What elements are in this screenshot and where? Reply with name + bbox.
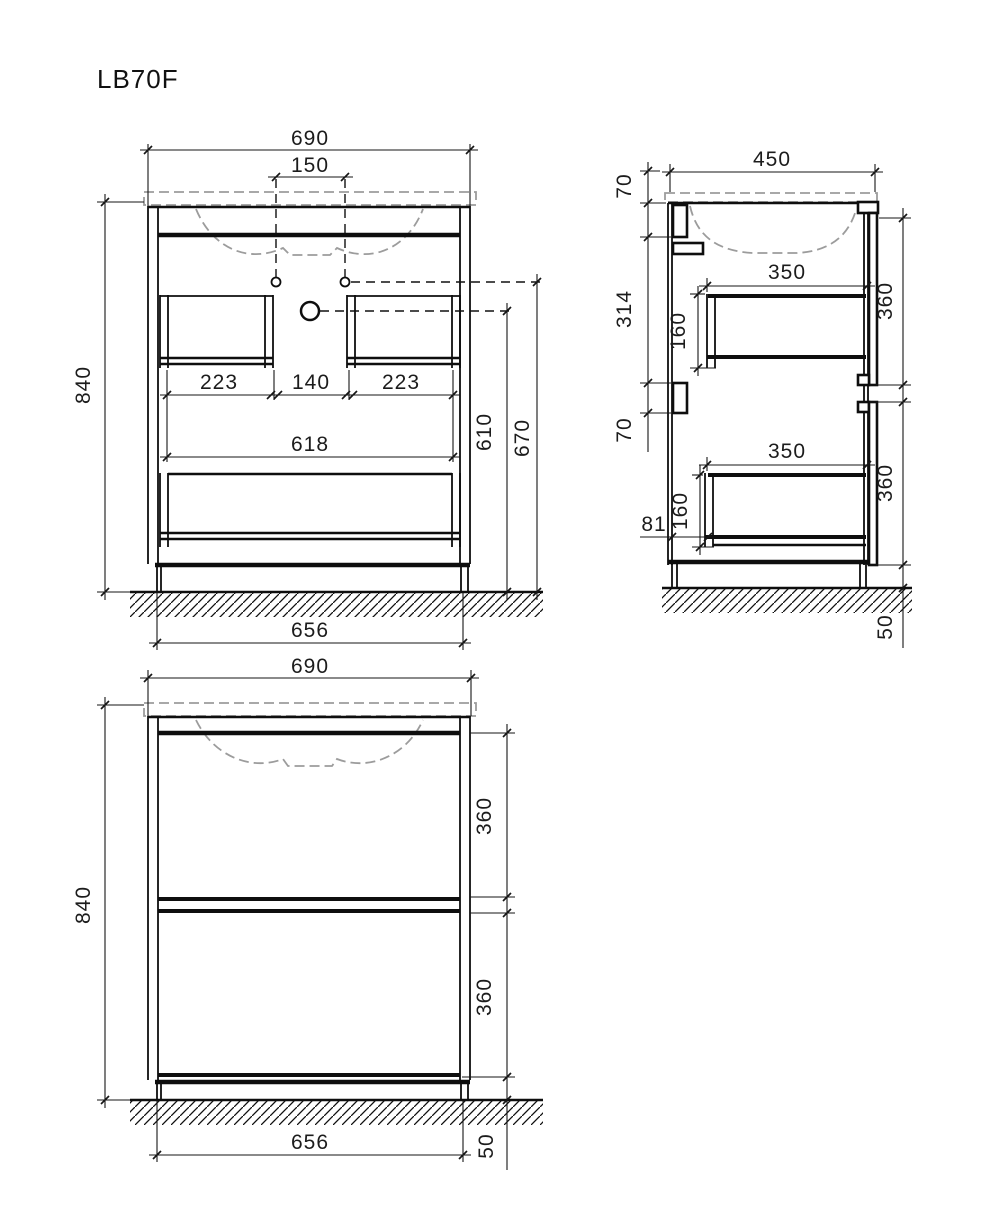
side-view-drawer-boxes [705, 294, 866, 547]
dim-front-left-drawer-width: 223 [200, 371, 238, 394]
model-code-label: LB70F [97, 64, 179, 94]
dim-side-top-rail-offset: 70 [613, 173, 636, 198]
drain-hole [301, 302, 319, 320]
dim-side-back-offset: 81 [641, 513, 666, 536]
dim-front-drain-height: 610 [473, 413, 496, 451]
dim-bottom-lower-front-height: 360 [473, 978, 496, 1016]
faucet-hole-right [341, 278, 350, 287]
dim-bottom-plinth-height: 50 [475, 1133, 498, 1158]
drawing-sheet: LB70F [0, 0, 1000, 1225]
faucet-hole-left [272, 278, 281, 287]
back-clip [673, 243, 703, 254]
dim-bottom-base-width: 656 [291, 1131, 329, 1154]
dim-front-center-gap: 140 [292, 371, 330, 394]
back-rail-top [673, 205, 687, 237]
front-view-basin-outline [144, 192, 476, 255]
bottom-view-dimensions [97, 670, 515, 1170]
dim-front-overall-width: 690 [291, 127, 329, 150]
dim-front-faucet-height: 670 [511, 419, 534, 457]
dim-bottom-overall-width: 690 [291, 655, 329, 678]
front-view-dimensions [97, 144, 541, 650]
dim-side-upper-front-height: 360 [874, 282, 897, 320]
side-view-ground [662, 588, 912, 613]
dim-side-lower-drawer-depth: 350 [768, 440, 806, 463]
dim-side-plinth-height: 50 [874, 614, 897, 639]
back-rail-middle [673, 383, 687, 413]
bottom-front-view: 690 840 360 360 656 50 [72, 655, 543, 1170]
front-view-drawer-boxes [160, 295, 460, 547]
side-view: 450 70 314 70 350 160 360 350 160 81 360… [613, 148, 912, 648]
side-view-drawer-fronts [858, 202, 878, 565]
drawing-canvas: LB70F [0, 0, 1000, 1225]
bottom-view-ground [130, 1100, 543, 1125]
dim-front-base-width: 656 [291, 619, 329, 642]
dim-side-upper-drawer-side: 160 [667, 312, 690, 350]
dim-front-overall-height: 840 [72, 366, 95, 404]
dim-side-lower-front-height: 360 [874, 464, 897, 502]
dim-side-depth: 450 [753, 148, 791, 171]
dim-side-lower-drawer-side: 160 [669, 492, 692, 530]
dim-front-interior-width: 618 [291, 433, 329, 456]
dim-side-lower-rail-height: 70 [613, 417, 636, 442]
dim-front-faucet-spacing: 150 [291, 154, 329, 177]
dim-front-right-drawer-width: 223 [382, 371, 420, 394]
dim-side-upper-drawer-depth: 350 [768, 261, 806, 284]
dim-side-back-rail-spacing: 314 [613, 290, 636, 328]
bottom-view-carcass [148, 716, 470, 1100]
front-view-ground [130, 592, 543, 617]
dim-bottom-overall-height: 840 [72, 886, 95, 924]
front-view: 690 150 840 223 140 223 618 610 670 656 [72, 127, 543, 650]
dim-bottom-upper-front-height: 360 [473, 797, 496, 835]
front-view-faucet-drain [272, 179, 544, 320]
